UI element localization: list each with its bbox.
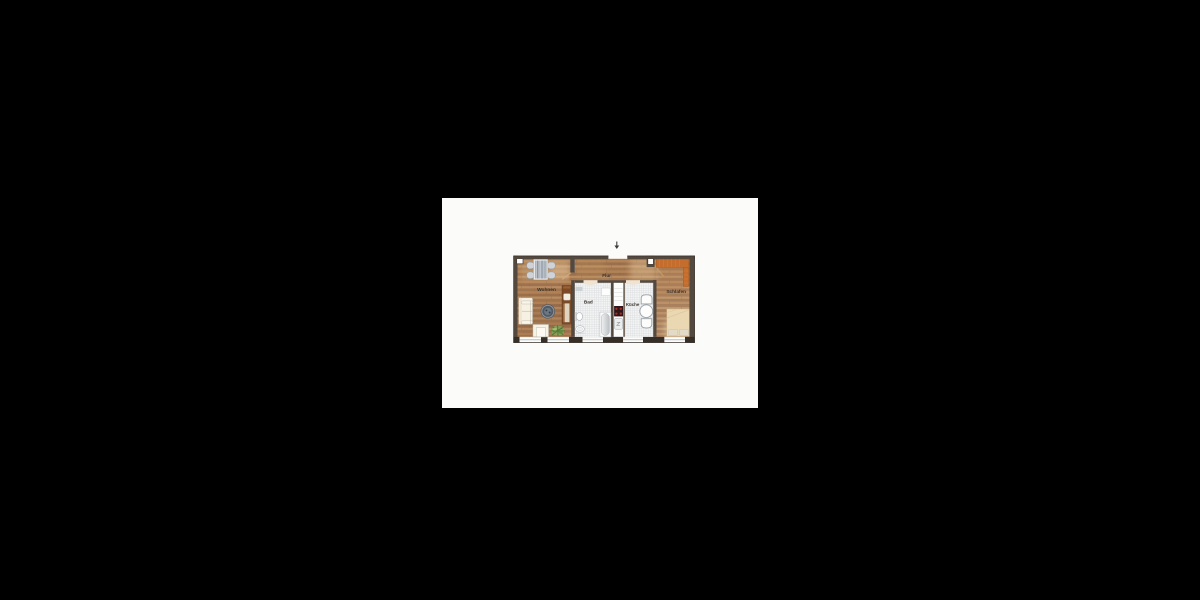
svg-text:Wohnen: Wohnen <box>537 287 556 293</box>
svg-text:Flur: Flur <box>602 273 611 278</box>
svg-text:Schlafen: Schlafen <box>666 289 686 294</box>
svg-text:Küche: Küche <box>626 302 640 307</box>
svg-text:Bad: Bad <box>584 299 593 304</box>
